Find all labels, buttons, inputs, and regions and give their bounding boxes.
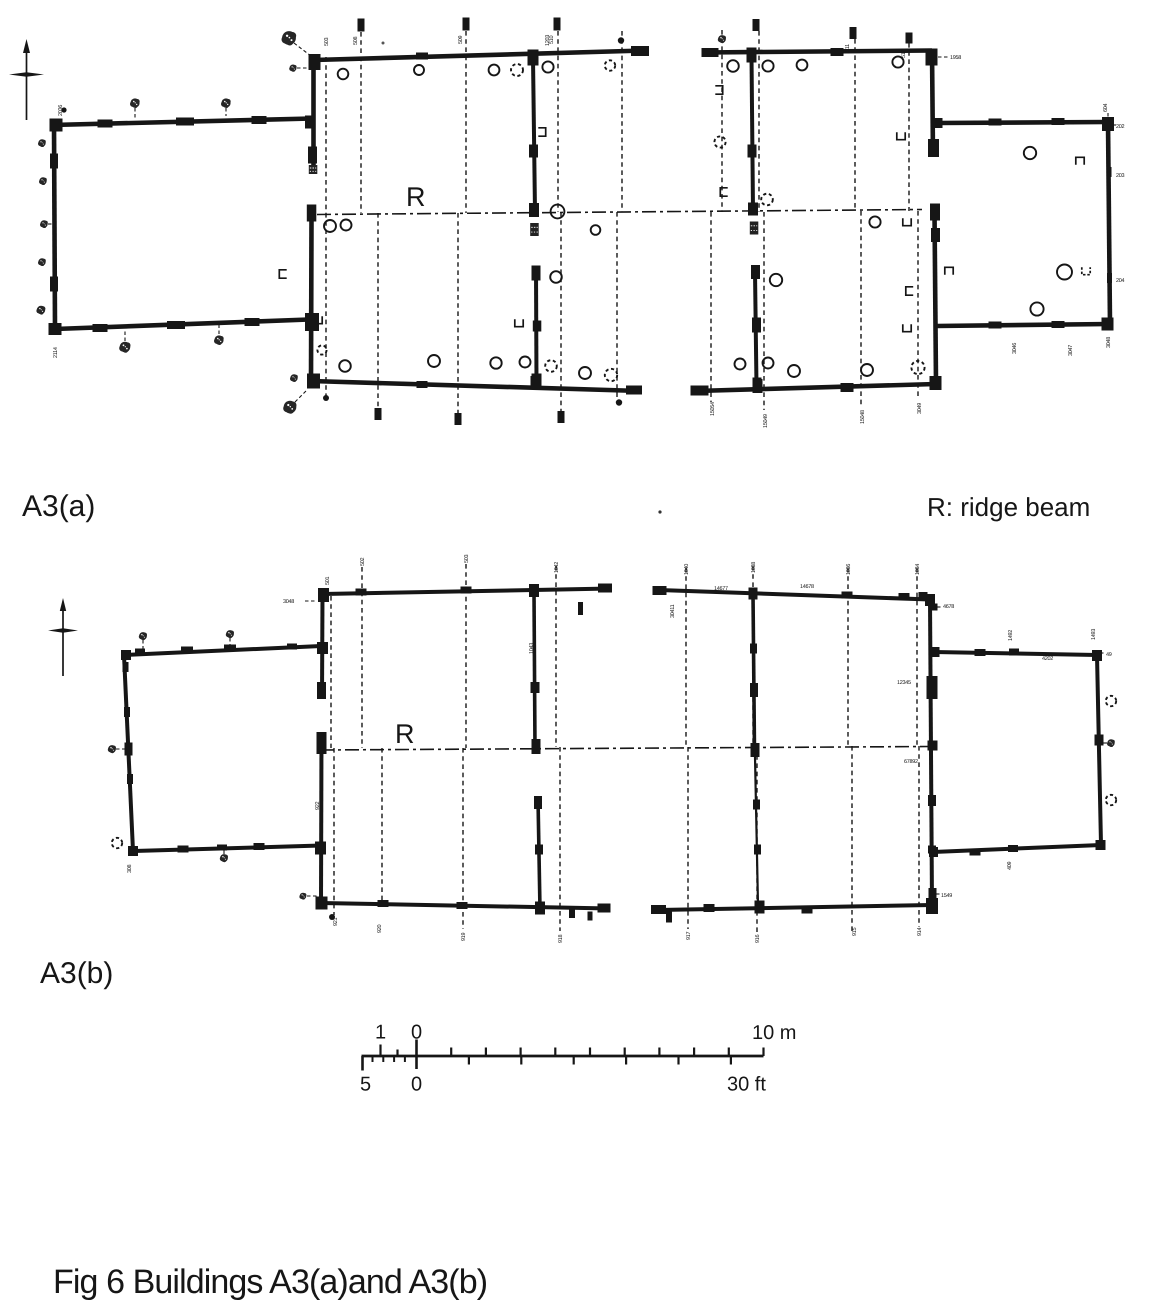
svg-text:10 m: 10 m <box>752 1022 796 1044</box>
svg-text:1034: 1034 <box>915 564 921 575</box>
svg-text:511: 511 <box>845 44 851 52</box>
svg-text:503: 503 <box>464 554 470 563</box>
svg-text:R: R <box>395 719 415 749</box>
svg-text:49: 49 <box>1106 652 1112 658</box>
svg-text:915: 915 <box>852 927 858 936</box>
svg-text:204: 204 <box>1116 278 1125 284</box>
svg-text:15048: 15048 <box>860 410 866 424</box>
svg-text:2036: 2036 <box>58 105 64 116</box>
svg-text:12345: 12345 <box>897 680 911 686</box>
svg-text:509: 509 <box>458 35 464 44</box>
svg-text:2114: 2114 <box>53 347 59 358</box>
svg-text:3048: 3048 <box>283 599 294 605</box>
svg-text:1549: 1549 <box>941 893 952 899</box>
svg-text:3047: 3047 <box>1068 345 1074 356</box>
svg-text:919: 919 <box>461 932 467 941</box>
svg-text:1036: 1036 <box>846 564 852 575</box>
svg-text:15049: 15049 <box>763 414 769 428</box>
svg-text:67892: 67892 <box>904 759 918 765</box>
svg-text:308: 308 <box>127 864 133 873</box>
svg-text:0: 0 <box>411 1074 422 1096</box>
svg-text:510: 510 <box>549 35 555 44</box>
svg-text:203: 203 <box>1116 173 1125 179</box>
svg-text:920: 920 <box>377 924 383 933</box>
svg-text:1958: 1958 <box>950 55 961 61</box>
svg-text:917: 917 <box>686 931 692 940</box>
svg-text:512: 512 <box>901 49 907 58</box>
svg-text:501: 501 <box>325 576 331 585</box>
svg-text:409: 409 <box>1007 861 1013 870</box>
svg-text:4202: 4202 <box>1042 656 1053 662</box>
svg-text:3046: 3046 <box>1012 343 1018 354</box>
svg-text:1043: 1043 <box>529 643 535 654</box>
svg-text:R: R <box>406 182 426 212</box>
svg-text:1: 1 <box>375 1022 386 1044</box>
svg-text:3048: 3048 <box>1106 337 1112 348</box>
svg-text:14677: 14677 <box>714 586 728 592</box>
svg-text:1040: 1040 <box>684 564 690 575</box>
svg-text:914: 914 <box>917 927 923 936</box>
svg-text:1042: 1042 <box>554 562 560 573</box>
svg-text:14678: 14678 <box>800 584 814 590</box>
svg-text:R: ridge beam: R: ridge beam <box>927 492 1090 522</box>
svg-text:1492: 1492 <box>1008 630 1014 641</box>
svg-text:15054: 15054 <box>710 402 716 416</box>
svg-text:30 ft: 30 ft <box>727 1074 766 1096</box>
svg-text:508: 508 <box>353 36 359 45</box>
svg-text:921: 921 <box>333 917 339 926</box>
svg-text:4678: 4678 <box>943 604 954 610</box>
svg-text:A3(b): A3(b) <box>40 957 113 990</box>
svg-text:0: 0 <box>411 1022 422 1044</box>
svg-text:1038: 1038 <box>751 562 757 573</box>
svg-text:604: 604 <box>1103 103 1109 112</box>
svg-text:503: 503 <box>324 37 330 46</box>
svg-text:A3(a): A3(a) <box>22 490 95 523</box>
svg-text:918: 918 <box>558 934 564 943</box>
svg-text:1493: 1493 <box>1091 629 1097 640</box>
svg-text:5: 5 <box>360 1074 371 1096</box>
svg-text:922: 922 <box>315 801 321 810</box>
svg-text:502: 502 <box>360 557 366 566</box>
svg-text:202: 202 <box>1116 124 1125 130</box>
svg-text:916: 916 <box>755 934 761 943</box>
svg-text:Fig 6 Buildings A3(a)and A3(b): Fig 6 Buildings A3(a)and A3(b) <box>53 1263 487 1300</box>
svg-text:3049: 3049 <box>917 403 923 414</box>
svg-text:30411: 30411 <box>670 604 676 618</box>
